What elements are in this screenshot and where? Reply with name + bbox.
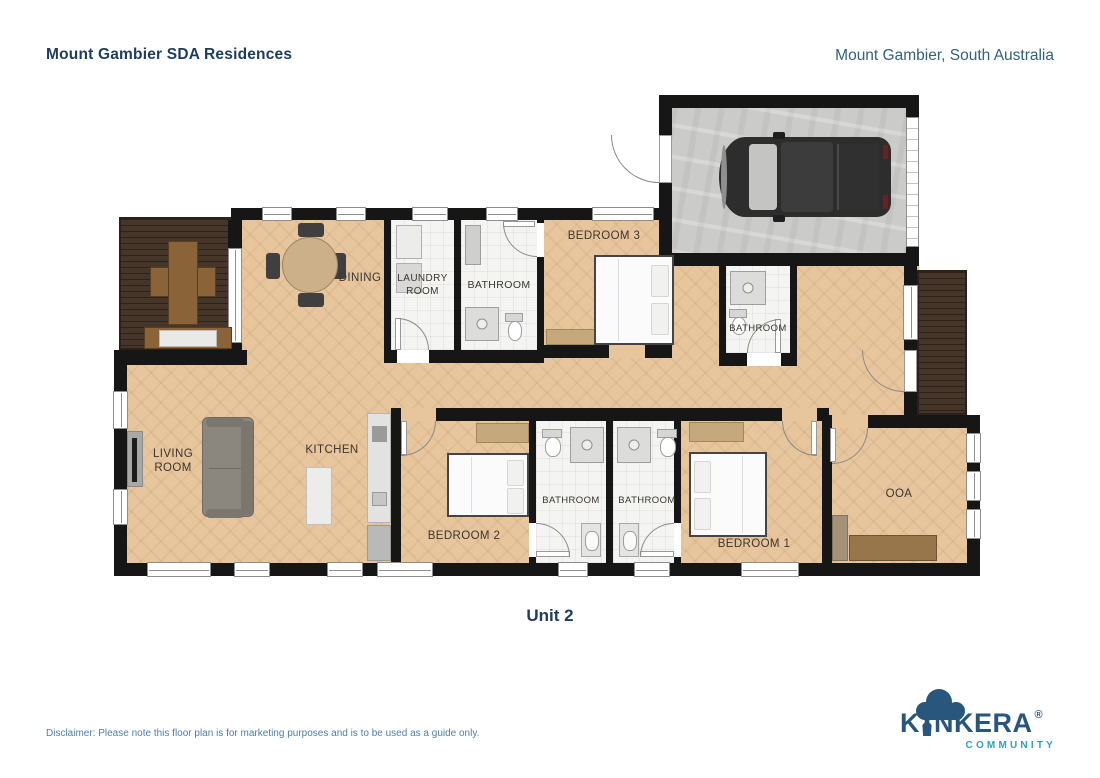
page-location: Mount Gambier, South Australia <box>835 47 1054 65</box>
window <box>903 285 918 340</box>
window <box>592 207 654 221</box>
window <box>486 207 518 221</box>
dining-chair <box>266 253 280 279</box>
sofa-armrest <box>206 418 244 427</box>
wall <box>790 266 797 353</box>
bed <box>594 255 674 345</box>
kitchen-counter <box>367 413 391 523</box>
door-gap <box>397 350 429 363</box>
logo-prefix: K <box>900 710 920 737</box>
car-mirror <box>773 132 785 139</box>
room-label-bathroom-top: BATHROOM <box>459 279 539 292</box>
door-gap <box>832 415 868 428</box>
wall <box>228 220 242 248</box>
toilet <box>657 429 677 457</box>
kitchen-island <box>306 467 332 525</box>
sofa-cushion-line <box>209 468 241 469</box>
bench-cushion <box>159 330 217 347</box>
pillow <box>651 303 669 335</box>
sofa-backrest <box>241 421 253 515</box>
room-label-ooa: OOA <box>866 487 932 501</box>
room-label-kitchen: KITCHEN <box>292 443 372 457</box>
door-gap <box>659 135 672 183</box>
cooktop <box>372 426 387 442</box>
door-arc <box>611 135 659 183</box>
wall <box>606 421 613 563</box>
desk <box>849 535 937 561</box>
car-taillight <box>883 195 888 209</box>
kinkera-logo: K NKERA ® COMMUNITY <box>900 688 1056 751</box>
room-label-bathroom-ensuite-left: BATHROOM <box>534 495 608 507</box>
logo-subtitle: COMMUNITY <box>900 740 1056 751</box>
exterior-patch <box>919 215 967 270</box>
window <box>336 207 366 221</box>
room-label-bedroom-2: BEDROOM 2 <box>412 529 516 543</box>
wall <box>659 95 919 108</box>
car-mirror <box>773 215 785 222</box>
dining-chair <box>298 223 324 237</box>
window <box>966 509 981 539</box>
unit-label: Unit 2 <box>450 606 650 626</box>
window <box>966 471 981 501</box>
wall <box>391 408 401 563</box>
window <box>741 562 799 577</box>
washing-machine <box>396 225 422 259</box>
wall <box>114 350 247 365</box>
registered-mark: ® <box>1035 710 1044 721</box>
door-gap <box>609 345 645 358</box>
deck-right <box>917 270 967 415</box>
sofa <box>202 417 254 517</box>
shower <box>617 427 651 463</box>
car-taillight <box>883 145 888 159</box>
window <box>634 562 670 577</box>
door-gap <box>529 523 536 557</box>
outdoor-bench <box>144 327 232 349</box>
window <box>234 562 270 577</box>
tv-unit <box>127 431 143 487</box>
window <box>412 207 448 221</box>
sink <box>372 492 387 506</box>
window <box>377 562 433 577</box>
blanket-fold <box>742 456 743 533</box>
car-front-bumper <box>721 145 727 209</box>
outdoor-table <box>150 241 216 325</box>
wall <box>719 266 726 353</box>
room-label-bathroom-ensuite-right: BATHROOM <box>610 495 684 507</box>
window <box>262 207 292 221</box>
page-title: Mount Gambier SDA Residences <box>46 46 292 64</box>
door-gap <box>537 223 544 257</box>
door-gap <box>674 523 681 557</box>
wall <box>537 345 672 358</box>
room-label-bathroom-mid: BATHROOM <box>719 323 797 335</box>
toilet <box>542 429 562 457</box>
wardrobe <box>689 422 744 442</box>
cabinet <box>832 515 848 561</box>
room-label-living-room: LIVING ROOM <box>142 447 204 476</box>
room-label-dining: DINING <box>324 271 396 285</box>
shower <box>465 307 499 341</box>
car-roof <box>781 142 833 212</box>
vanity-sink <box>581 523 601 557</box>
toilet <box>505 313 523 341</box>
shower <box>570 427 604 463</box>
window <box>147 562 211 577</box>
window <box>327 562 363 577</box>
garage-roller-door <box>906 117 919 247</box>
blanket-fold <box>471 457 472 513</box>
window <box>966 433 981 463</box>
floor-plan: DINING LAUNDRY ROOM BATHROOM BEDROOM 3 B… <box>114 95 986 587</box>
shower-panel <box>465 225 481 265</box>
outdoor-table-part <box>168 241 198 325</box>
pillow <box>507 460 524 486</box>
car-windshield <box>749 144 777 210</box>
wall <box>391 408 829 421</box>
wall <box>114 357 127 563</box>
door-gap <box>904 350 917 392</box>
shelf <box>476 423 529 443</box>
logo-suffix: NKERA <box>934 710 1033 737</box>
pillow <box>694 498 711 530</box>
bed <box>447 453 529 517</box>
car-rear-window <box>837 144 879 210</box>
tv-screen <box>132 438 137 482</box>
bed <box>689 452 767 537</box>
door-gap <box>782 408 817 421</box>
logo-wordmark: K NKERA ® <box>900 710 1056 737</box>
disclaimer-text: Disclaimer: Please note this floor plan … <box>46 728 479 739</box>
vanity-sink <box>619 523 639 557</box>
pillow <box>694 461 711 493</box>
door-gap <box>401 408 436 421</box>
pillow <box>651 265 669 297</box>
room-label-laundry: LAUNDRY ROOM <box>391 273 454 298</box>
sofa-armrest <box>206 509 244 518</box>
wall <box>659 253 919 266</box>
room-label-bedroom-1: BEDROOM 1 <box>702 537 806 551</box>
logo-figure-icon <box>922 716 933 736</box>
pillow <box>507 488 524 514</box>
window <box>113 489 128 525</box>
room-label-bedroom-3: BEDROOM 3 <box>552 229 656 243</box>
shower <box>730 271 766 305</box>
dining-chair <box>298 293 324 307</box>
kitchen-cabinet <box>367 525 391 561</box>
car <box>719 137 891 217</box>
window <box>113 391 128 429</box>
floor-plan-page: Mount Gambier SDA Residences Mount Gambi… <box>0 0 1100 778</box>
blanket-fold <box>618 259 619 341</box>
door-gap <box>747 353 781 366</box>
window <box>558 562 588 577</box>
